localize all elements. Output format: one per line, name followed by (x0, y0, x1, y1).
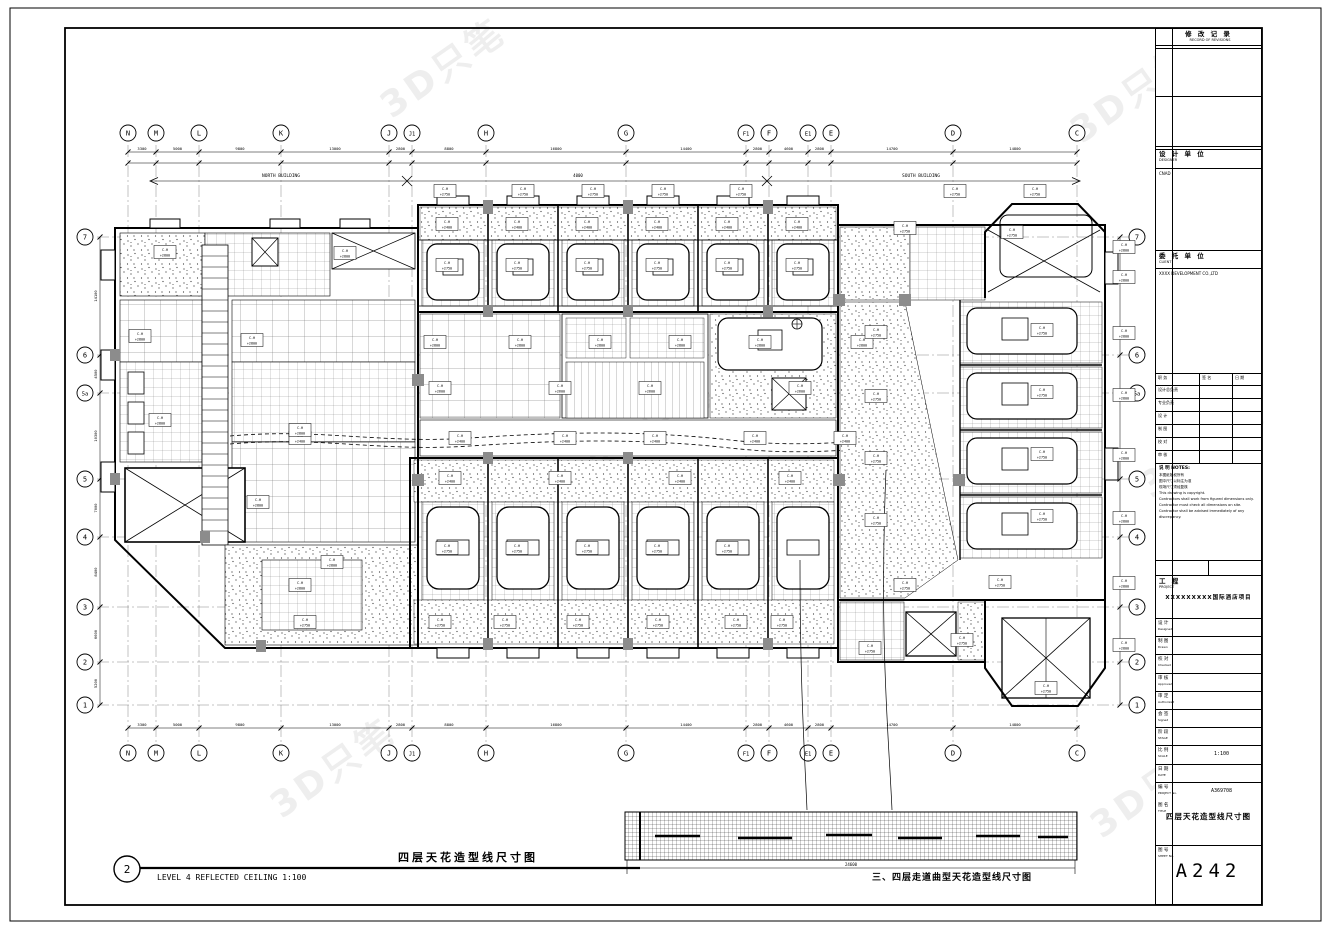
svg-text:C.H: C.H (873, 392, 879, 396)
ch-label: C.H+2750 (582, 185, 604, 198)
svg-text:+2750: +2750 (588, 193, 598, 197)
svg-text:+2800: +2800 (1119, 335, 1129, 339)
svg-text:C.H: C.H (557, 384, 563, 388)
ch-label: C.H+2800 (1113, 512, 1135, 525)
svg-text:C.H: C.H (1039, 450, 1045, 454)
svg-text:+2750: +2750 (871, 334, 881, 338)
ch-label: C.H+2750 (646, 259, 668, 272)
svg-text:+2800: +2800 (295, 432, 305, 436)
svg-text:+2800: +2800 (1119, 249, 1129, 253)
detail-caption: 三、四层走道曲型天花造型线尺寸图 (872, 871, 1032, 883)
svg-text:C.H: C.H (1121, 451, 1127, 455)
ch-label: C.H+2400 (436, 218, 458, 231)
ch-label: C.H+2800 (1113, 271, 1135, 284)
svg-text:5200: 5200 (93, 678, 98, 688)
svg-text:+2750: +2750 (731, 624, 741, 628)
grid-bubble: 4 (1129, 529, 1145, 545)
ch-label: C.H+2800 (289, 424, 311, 437)
svg-text:+2800: +2800 (155, 422, 165, 426)
ch-label: C.H+2400 (506, 218, 528, 231)
ch-label: C.H+2750 (436, 259, 458, 272)
svg-text:C.H: C.H (677, 338, 683, 342)
svg-text:C.H: C.H (655, 618, 661, 622)
svg-text:C.H: C.H (444, 544, 450, 548)
svg-text:C.H: C.H (342, 249, 348, 253)
svg-text:5a: 5a (82, 391, 89, 397)
svg-text:+2400: +2400 (652, 226, 662, 230)
svg-text:+2400: +2400 (792, 226, 802, 230)
designer-header: 设 计 单 位 DESIGNER (1156, 149, 1261, 169)
title-block-field: 编 号PROJECT No.A369708 (1156, 783, 1261, 801)
svg-text:J1: J1 (409, 131, 416, 137)
svg-text:2800: 2800 (815, 146, 825, 151)
ch-label: C.H+2600 (429, 382, 451, 395)
svg-text:+2750: +2750 (582, 550, 592, 554)
svg-text:14400: 14400 (680, 722, 692, 727)
svg-text:+2600: +2600 (435, 390, 445, 394)
svg-text:+2750: +2750 (442, 550, 452, 554)
ch-label: C.H+2400 (576, 218, 598, 231)
ch-label: C.H+2800 (669, 336, 691, 349)
svg-text:C.H: C.H (738, 187, 744, 191)
grid-bubble: F (761, 745, 777, 761)
svg-text:C.H: C.H (584, 261, 590, 265)
title-block-field: 阶 段STAGE (1156, 728, 1261, 746)
ch-label: C.H+2800 (749, 336, 771, 349)
svg-text:C.H: C.H (842, 434, 848, 438)
svg-text:9800: 9800 (235, 722, 245, 727)
svg-text:+2750: +2750 (442, 267, 452, 271)
grid-bubble: J1 (404, 745, 420, 761)
svg-text:4600: 4600 (784, 722, 794, 727)
svg-text:+2800: +2800 (340, 255, 350, 259)
svg-text:F: F (767, 749, 771, 757)
svg-text:C.H: C.H (297, 426, 303, 430)
svg-text:L: L (197, 749, 201, 757)
ch-label: C.H+2400 (644, 432, 666, 445)
svg-text:+2750: +2750 (1041, 690, 1051, 694)
svg-text:8800: 8800 (444, 146, 454, 151)
client-box: XXXX DEVELOPMENT CO.,LTD (1156, 269, 1261, 374)
svg-text:+2400: +2400 (555, 480, 565, 484)
title-block-field: 设 计Designed (1156, 619, 1261, 637)
svg-text:E1: E1 (805, 131, 812, 137)
ch-label: C.H+2750 (576, 542, 598, 555)
svg-text:4600: 4600 (784, 146, 794, 151)
svg-text:2800: 2800 (815, 722, 825, 727)
ch-label: C.H+2750 (865, 326, 887, 339)
svg-text:C.H: C.H (255, 498, 261, 502)
svg-text:C.H: C.H (1121, 579, 1127, 583)
ch-label: C.H+2400 (779, 472, 801, 485)
svg-text:C.H: C.H (297, 581, 303, 585)
sign-col-header: 日 期 (1233, 374, 1261, 385)
svg-text:+2750: +2750 (652, 550, 662, 554)
grid-bubble: L (191, 125, 207, 141)
svg-text:+2800: +2800 (675, 344, 685, 348)
svg-text:3: 3 (1135, 603, 1139, 611)
ch-label: C.H+2400 (439, 472, 461, 485)
grid-bubble: 7 (77, 229, 93, 245)
sign-row: 制 图 (1156, 425, 1261, 438)
svg-text:+2750: +2750 (722, 550, 732, 554)
svg-text:+2400: +2400 (750, 440, 760, 444)
svg-text:L: L (197, 129, 201, 137)
ch-label: C.H+2750 (716, 542, 738, 555)
svg-text:+2800: +2800 (515, 344, 525, 348)
svg-text:+2400: +2400 (512, 226, 522, 230)
svg-text:+2800: +2800 (295, 587, 305, 591)
svg-text:7: 7 (83, 233, 87, 241)
drawing-title: 四层天花造型线尺寸图 (1156, 811, 1261, 822)
grid-bubble: 1 (1129, 697, 1145, 713)
svg-text:+2750: +2750 (1037, 518, 1047, 522)
svg-text:5: 5 (83, 475, 87, 483)
svg-text:+2750: +2750 (512, 550, 522, 554)
svg-text:C.H: C.H (520, 187, 526, 191)
title-block-field: 比 例SCALE1:100 (1156, 746, 1261, 764)
ch-label: C.H+2750 (865, 452, 887, 465)
svg-text:+2750: +2750 (792, 267, 802, 271)
svg-text:6: 6 (1135, 351, 1139, 359)
svg-text:+2750: +2750 (950, 193, 960, 197)
ch-label: C.H+2750 (434, 185, 456, 198)
svg-text:E1: E1 (805, 751, 812, 757)
svg-text:+2750: +2750 (1030, 193, 1040, 197)
ch-label: C.H+2800 (321, 556, 343, 569)
grid-bubble: 1 (77, 697, 93, 713)
svg-text:C.H: C.H (794, 220, 800, 224)
svg-text:C.H: C.H (1039, 512, 1045, 516)
svg-text:2800: 2800 (396, 722, 406, 727)
project-box: 工 程 PROJECT XXXXXXXXX国际酒店项目 (1156, 576, 1261, 619)
designer-box: CNAD (1156, 169, 1261, 251)
svg-text:C.H: C.H (444, 261, 450, 265)
svg-text:+2750: +2750 (518, 193, 528, 197)
ch-label: C.H+2750 (647, 616, 669, 629)
svg-text:J1: J1 (409, 751, 416, 757)
svg-text:+2800: +2800 (327, 564, 337, 568)
grid-bubble: E (823, 745, 839, 761)
grid-bubble: J (381, 125, 397, 141)
svg-text:+2800: +2800 (1119, 647, 1129, 651)
svg-text:C.H: C.H (654, 220, 660, 224)
svg-text:+2750: +2750 (435, 624, 445, 628)
svg-text:C.H: C.H (557, 474, 563, 478)
svg-text:5000: 5000 (173, 722, 183, 727)
svg-text:E: E (829, 749, 833, 757)
revisions-box-2 (1156, 97, 1261, 147)
ch-label: C.H+2400 (669, 472, 691, 485)
ch-label: C.H+2800 (1113, 449, 1135, 462)
ch-label: C.H+2750 (494, 616, 516, 629)
ch-label: C.H+2750 (646, 542, 668, 555)
ch-label: C.H+2400 (449, 432, 471, 445)
ch-label: C.H+2750 (429, 616, 451, 629)
svg-text:J: J (387, 749, 391, 757)
svg-text:C.H: C.H (249, 336, 255, 340)
svg-text:+2800: +2800 (1119, 520, 1129, 524)
grid-bubble: H (478, 745, 494, 761)
svg-text:C.H: C.H (652, 434, 658, 438)
ch-label: C.H+2800 (1113, 389, 1135, 402)
ch-label: C.H+2750 (1001, 226, 1023, 239)
svg-text:J: J (387, 129, 391, 137)
svg-text:D: D (951, 749, 955, 757)
svg-text:+2400: +2400 (785, 480, 795, 484)
ch-label: C.H+2750 (944, 185, 966, 198)
svg-text:C.H: C.H (514, 544, 520, 548)
svg-text:C.H: C.H (677, 474, 683, 478)
svg-text:+2800: +2800 (595, 344, 605, 348)
ch-label: C.H+2750 (1031, 510, 1053, 523)
ch-label: C.H+2400 (549, 472, 571, 485)
svg-text:D: D (951, 129, 955, 137)
svg-text:C.H: C.H (1039, 388, 1045, 392)
grid-bubble: 3 (77, 599, 93, 615)
svg-text:C.H: C.H (584, 544, 590, 548)
grid-bubble: 4 (77, 529, 93, 545)
ch-label: C.H+2750 (865, 514, 887, 527)
svg-text:C.H: C.H (1121, 329, 1127, 333)
grid-bubble: E1 (800, 125, 816, 141)
grid-bubble: 5a (77, 385, 93, 401)
grid-bubble: G (618, 125, 634, 141)
svg-text:3: 3 (83, 603, 87, 611)
sign-row: 设计总负责 (1156, 386, 1261, 399)
svg-text:+2400: +2400 (650, 440, 660, 444)
svg-text:+2750: +2750 (573, 624, 583, 628)
grid-bubble: K (273, 745, 289, 761)
svg-text:2800: 2800 (753, 722, 763, 727)
sheet-number: A242 (1156, 860, 1261, 882)
svg-text:E: E (829, 129, 833, 137)
ch-label: C.H+2750 (989, 576, 1011, 589)
svg-text:C.H: C.H (873, 328, 879, 332)
svg-text:N: N (126, 749, 130, 757)
svg-text:C.H: C.H (442, 187, 448, 191)
svg-text:+2750: +2750 (957, 642, 967, 646)
svg-text:14700: 14700 (886, 146, 898, 151)
svg-text:+2400: +2400 (675, 480, 685, 484)
grid-bubble: E (823, 125, 839, 141)
svg-text:3300: 3300 (137, 722, 147, 727)
ch-label: C.H+2800 (334, 247, 356, 260)
svg-text:+2400: +2400 (722, 226, 732, 230)
svg-text:+2400: +2400 (445, 480, 455, 484)
svg-text:+2800: +2800 (857, 344, 867, 348)
svg-text:H: H (484, 749, 488, 757)
title-block-field: 审 核Approved (1156, 674, 1261, 692)
grid-bubble: 6 (1129, 347, 1145, 363)
grid-bubble: F (761, 125, 777, 141)
svg-text:C.H: C.H (137, 332, 143, 336)
svg-text:C.H: C.H (867, 644, 873, 648)
svg-text:C.H: C.H (432, 338, 438, 342)
svg-text:C.H: C.H (752, 434, 758, 438)
ch-label: C.H+2750 (859, 642, 881, 655)
svg-text:+2800: +2800 (253, 504, 263, 508)
svg-text:14800: 14800 (1009, 146, 1021, 151)
grid-bubble: E1 (800, 745, 816, 761)
ch-label: C.H+2750 (725, 616, 747, 629)
notes-box: 说 明 NOTES: 本图纸版权所有图中尺寸以标注为准现场尺寸须经复核This … (1156, 464, 1261, 561)
svg-text:F1: F1 (743, 131, 750, 137)
field-rows: 设 计Designed制 图Drawn校 对Checked审 核Approved… (1156, 619, 1261, 801)
ch-label: C.H+2400 (786, 218, 808, 231)
svg-text:+2800: +2800 (1119, 585, 1129, 589)
plan-number: 2 (124, 863, 131, 876)
svg-text:C.H: C.H (444, 220, 450, 224)
svg-text:+2800: +2800 (755, 344, 765, 348)
svg-text:4: 4 (83, 533, 87, 541)
svg-text:+2400: +2400 (455, 440, 465, 444)
svg-text:+2800: +2800 (247, 342, 257, 346)
svg-text:+2750: +2750 (500, 624, 510, 628)
svg-text:7000: 7000 (93, 503, 98, 513)
ch-label: C.H+2750 (1035, 682, 1057, 695)
south-building-label: SOUTH BUILDING (902, 173, 940, 179)
svg-text:6: 6 (83, 351, 87, 359)
svg-text:+2600: +2600 (645, 390, 655, 394)
svg-text:+2750: +2750 (440, 193, 450, 197)
svg-text:C.H: C.H (157, 416, 163, 420)
ch-label: C.H+2750 (1024, 185, 1046, 198)
svg-text:C.H: C.H (447, 474, 453, 478)
svg-text:+2800: +2800 (160, 254, 170, 258)
svg-text:8400: 8400 (93, 567, 98, 577)
svg-text:3300: 3300 (137, 146, 147, 151)
grid-bubble: N (120, 745, 136, 761)
ch-label: C.H+2800 (509, 336, 531, 349)
svg-text:C.H: C.H (590, 187, 596, 191)
ch-label: C.H+2750 (506, 542, 528, 555)
svg-text:+2750: +2750 (871, 460, 881, 464)
svg-text:C.H: C.H (859, 338, 865, 342)
svg-text:C.H: C.H (162, 248, 168, 252)
ch-label: C.H+2750 (1031, 448, 1053, 461)
svg-text:C: C (1075, 129, 1079, 137)
svg-text:14700: 14700 (886, 722, 898, 727)
ch-label: C.H+2800 (1113, 639, 1135, 652)
svg-text:+2750: +2750 (900, 587, 910, 591)
svg-text:5000: 5000 (173, 146, 183, 151)
grid-bubble: H (478, 125, 494, 141)
svg-text:+2400: +2400 (295, 440, 305, 444)
svg-text:N: N (126, 129, 130, 137)
ch-label: C.H+2750 (951, 634, 973, 647)
ch-label: C.H+2750 (567, 616, 589, 629)
svg-text:+2400: +2400 (840, 440, 850, 444)
ch-label: C.H+2600 (639, 382, 661, 395)
svg-text:5: 5 (1135, 475, 1139, 483)
svg-text:+2800: +2800 (1119, 397, 1129, 401)
svg-text:4: 4 (1135, 533, 1139, 541)
svg-text:C.H: C.H (724, 220, 730, 224)
ch-label: C.H+2800 (149, 414, 171, 427)
grid-bubble: 2 (1129, 654, 1145, 670)
svg-text:+2400: +2400 (560, 440, 570, 444)
svg-text:C.H: C.H (514, 261, 520, 265)
svg-text:16800: 16800 (550, 722, 562, 727)
svg-text:2800: 2800 (753, 146, 763, 151)
title-field: 图 名 TITLE 四层天花造型线尺寸图 (1156, 801, 1261, 846)
svg-text:+2750: +2750 (736, 193, 746, 197)
ch-label: C.H+2800 (241, 334, 263, 347)
sign-col-header: 签 名 (1200, 374, 1233, 385)
svg-text:10300: 10300 (93, 430, 98, 442)
title-block-field: 校 对Checked (1156, 655, 1261, 673)
svg-text:9800: 9800 (235, 146, 245, 151)
svg-text:+2800: +2800 (1119, 279, 1129, 283)
svg-text:+2750: +2750 (871, 398, 881, 402)
note-line: Contractor shall be advised immediately … (1159, 508, 1259, 520)
svg-text:+2750: +2750 (1007, 234, 1017, 238)
svg-text:C.H: C.H (329, 558, 335, 562)
svg-text:C: C (1075, 749, 1079, 757)
svg-text:C.H: C.H (1121, 514, 1127, 518)
svg-text:M: M (154, 749, 158, 757)
drawing-sheet: 3D只笔 3D只笔 3D只笔 3D只笔 3D只笔 3D只笔 (0, 0, 1330, 930)
ch-label: C.H+2750 (716, 259, 738, 272)
ch-label: C.H+2800 (289, 579, 311, 592)
title-block-field: 审 定Authorized (1156, 692, 1261, 710)
ch-label: C.H+2750 (436, 542, 458, 555)
svg-text:C.H: C.H (797, 384, 803, 388)
ch-label: C.H+2750 (771, 616, 793, 629)
ch-label: C.H+2800 (424, 336, 446, 349)
sign-col-header: 职 务 (1156, 374, 1200, 385)
detail-dim: 24600 (845, 862, 858, 867)
svg-text:C.H: C.H (302, 618, 308, 622)
svg-text:1: 1 (1135, 701, 1139, 709)
svg-text:8800: 8800 (444, 722, 454, 727)
grid-bubble: C (1069, 125, 1085, 141)
svg-text:C.H: C.H (902, 581, 908, 585)
signature-table: 职 务签 名日 期 设计总负责专业负责设 计制 图校 对审 核 (1156, 374, 1261, 464)
svg-text:14100: 14100 (93, 290, 98, 302)
ch-label: C.H+2750 (506, 259, 528, 272)
svg-text:F: F (767, 129, 771, 137)
svg-text:M: M (154, 129, 158, 137)
svg-text:6600: 6600 (93, 629, 98, 639)
svg-text:C.H: C.H (902, 224, 908, 228)
svg-text:C.H: C.H (1121, 243, 1127, 247)
svg-text:14800: 14800 (1009, 722, 1021, 727)
grid-bubble: F1 (738, 745, 754, 761)
svg-text:+2750: +2750 (300, 624, 310, 628)
ch-label: C.H+2800 (1113, 327, 1135, 340)
grid-bubble: J (381, 745, 397, 761)
ch-label: C.H+2800 (589, 336, 611, 349)
ch-label: C.H+2600 (549, 382, 571, 395)
svg-text:2800: 2800 (396, 146, 406, 151)
ch-label: C.H+2400 (744, 432, 766, 445)
title-block-field: 会 签Signed (1156, 710, 1261, 728)
svg-text:13000: 13000 (329, 722, 341, 727)
svg-text:C.H: C.H (873, 516, 879, 520)
svg-text:C.H: C.H (597, 338, 603, 342)
corridor-ceiling-detail: 24600 三、四层走道曲型天花造型线尺寸图 (625, 812, 1077, 883)
sign-row: 专业负责 (1156, 399, 1261, 412)
ch-label: C.H+2800 (1113, 577, 1135, 590)
ch-label: C.H+2400 (646, 218, 668, 231)
grid-bubble: 2 (77, 654, 93, 670)
grid-bubble: 6 (77, 347, 93, 363)
svg-text:+2750: +2750 (1037, 332, 1047, 336)
svg-text:+2750: +2750 (995, 584, 1005, 588)
svg-text:C.H: C.H (517, 338, 523, 342)
